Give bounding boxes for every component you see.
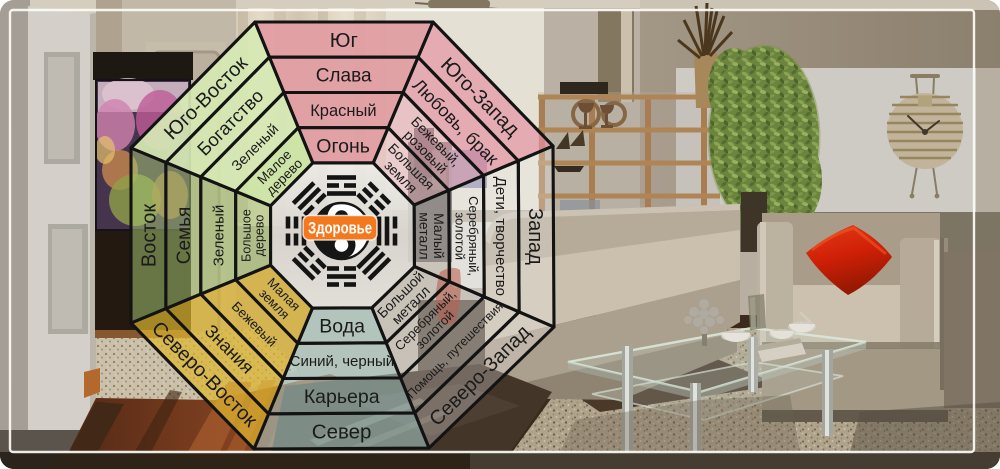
svg-text:Огонь: Огонь bbox=[316, 135, 370, 157]
svg-text:Синий, черный: Синий, черный bbox=[290, 353, 395, 370]
svg-text:Север: Север bbox=[312, 420, 372, 443]
svg-text:Вода: Вода bbox=[319, 316, 365, 338]
svg-text:Здоровье: Здоровье bbox=[308, 219, 372, 237]
svg-text:Слава: Слава bbox=[316, 66, 372, 87]
svg-text:Семья: Семья bbox=[174, 207, 195, 265]
svg-text:Красный: Красный bbox=[310, 102, 376, 120]
svg-text:Дети, творчество: Дети, творчество bbox=[492, 177, 509, 296]
svg-text:Карьера: Карьера bbox=[304, 386, 380, 408]
svg-text:Зеленый: Зеленый bbox=[211, 205, 228, 266]
svg-text:Запад: Запад bbox=[524, 208, 546, 265]
svg-text:Большоедерево: Большоедерево bbox=[240, 209, 267, 262]
svg-text:Восток: Восток bbox=[139, 204, 161, 268]
svg-text:Малыйметалл: Малыйметалл bbox=[416, 212, 447, 259]
svg-text:Юг: Юг bbox=[330, 29, 358, 52]
